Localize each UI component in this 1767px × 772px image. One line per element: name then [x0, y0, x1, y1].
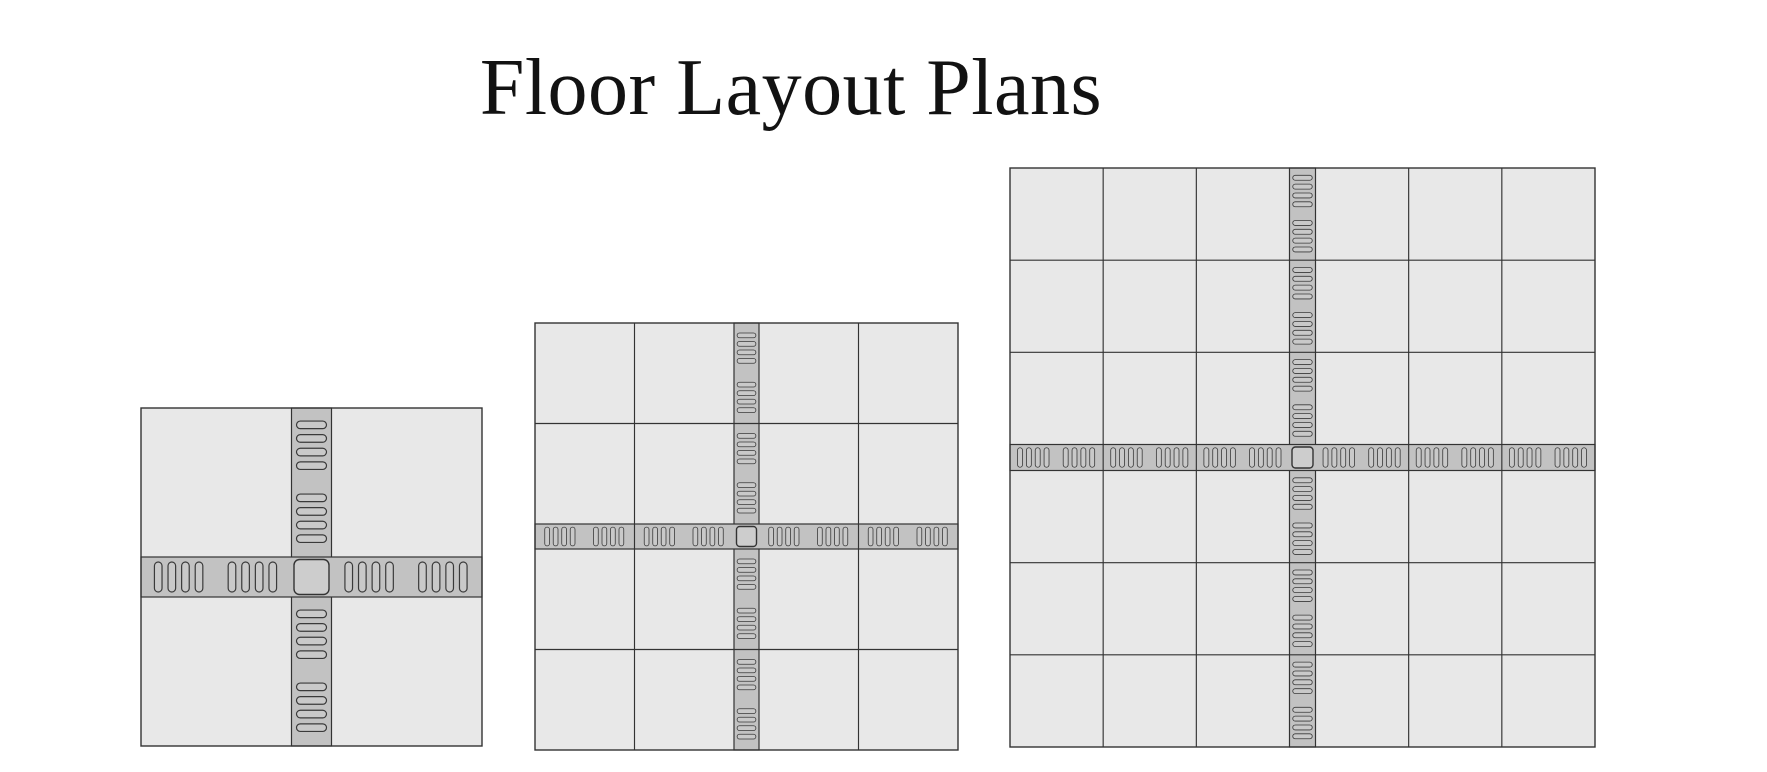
hatch-pill: [297, 697, 327, 705]
hatch-pill: [1471, 448, 1476, 468]
hatch-pill: [737, 382, 756, 387]
hatch-pill: [1434, 448, 1439, 468]
hatch-pill: [1293, 671, 1313, 676]
hatch-pill: [934, 527, 939, 546]
hatch-pill: [1293, 495, 1313, 500]
hatch-pill: [1293, 570, 1313, 575]
hatch-pill: [885, 527, 890, 546]
hatch-pill: [269, 562, 277, 592]
hatch-pill: [737, 500, 756, 505]
hatch-pill: [1293, 615, 1313, 620]
hatch-pill: [769, 527, 774, 546]
hatch-pill: [1258, 448, 1263, 468]
hatch-pill: [737, 491, 756, 496]
hatch-pill: [297, 535, 327, 543]
hatch-pill: [359, 562, 367, 592]
hatch-pill: [661, 527, 666, 546]
hatch-pill: [1527, 448, 1532, 468]
hatch-pill: [386, 562, 394, 592]
hatch-pill: [345, 562, 353, 592]
hatch-pill: [1293, 504, 1313, 509]
hatch-pill: [1293, 184, 1313, 189]
hatch-pill: [826, 527, 831, 546]
hatch-pill: [737, 677, 756, 682]
hatch-pill: [1443, 448, 1448, 468]
hatch-pill: [1293, 588, 1313, 593]
hatch-pill: [894, 527, 899, 546]
hatch-pill: [297, 651, 327, 659]
hatch-pill: [1293, 386, 1313, 391]
hatch-pill: [297, 435, 327, 443]
hatch-pill: [1293, 330, 1313, 335]
hatch-pill: [1293, 523, 1313, 528]
hatch-pill: [943, 527, 948, 546]
hatch-pill: [1276, 448, 1281, 468]
hatch-pill: [182, 562, 190, 592]
hatch-pill: [1293, 339, 1313, 344]
hatch-pill: [297, 683, 327, 691]
hatch-pill: [1293, 321, 1313, 326]
hatch-pill: [737, 350, 756, 355]
hatch-pill: [1555, 448, 1560, 468]
hatch-pill: [737, 451, 756, 456]
hatch-pill: [818, 527, 823, 546]
hatch-pill: [1323, 448, 1328, 468]
hatch-pill: [737, 608, 756, 613]
hatch-pill: [1018, 448, 1023, 468]
hatch-pill: [242, 562, 250, 592]
hatch-pill: [1293, 633, 1313, 638]
hatch-pill: [570, 527, 575, 546]
hatch-pill: [1293, 229, 1313, 234]
hatch-pill: [1156, 448, 1161, 468]
hatch-pill: [297, 448, 327, 456]
floor-plan-4x4: [535, 323, 958, 750]
hatch-pill: [1293, 247, 1313, 252]
hatch-pill: [1293, 734, 1313, 739]
hatch-pill: [1293, 487, 1313, 492]
hatch-pill: [1213, 448, 1218, 468]
hatch-pill: [1063, 448, 1068, 468]
hatch-pill: [835, 527, 840, 546]
hatch-pill: [553, 527, 558, 546]
hatch-pill: [1509, 448, 1514, 468]
hatch-pill: [1293, 220, 1313, 225]
hatch-pill: [1293, 431, 1313, 436]
hatch-pill: [737, 408, 756, 413]
hatch-pill: [1293, 313, 1313, 318]
hatch-pill: [1480, 448, 1485, 468]
hatch-pill: [1293, 422, 1313, 427]
hatch-pill: [1174, 448, 1179, 468]
center-intersection: [294, 560, 329, 595]
hatch-pill: [1293, 689, 1313, 694]
hatch-pill: [737, 576, 756, 581]
hatch-pill: [737, 585, 756, 590]
hatch-pill: [1293, 175, 1313, 180]
hatch-pill: [1293, 478, 1313, 483]
hatch-pill: [195, 562, 203, 592]
hatch-pill: [1044, 448, 1049, 468]
hatch-pill: [1536, 448, 1541, 468]
hatch-pill: [594, 527, 599, 546]
hatch-pill: [297, 521, 327, 529]
hatch-pill: [670, 527, 675, 546]
hatch-pill: [737, 559, 756, 564]
hatch-pill: [1111, 448, 1116, 468]
hatch-pill: [737, 625, 756, 630]
hatch-pill: [228, 562, 236, 592]
hatch-pill: [644, 527, 649, 546]
hatch-pill: [1204, 448, 1209, 468]
hatch-pill: [1090, 448, 1095, 468]
hatch-pill: [1564, 448, 1569, 468]
hatch-pill: [777, 527, 782, 546]
hatch-pill: [619, 527, 624, 546]
hatch-pill: [1293, 276, 1313, 281]
hatch-pill: [297, 637, 327, 645]
hatch-pill: [737, 668, 756, 673]
hatch-pill: [432, 562, 440, 592]
center-intersection: [737, 527, 757, 547]
hatch-pill: [737, 434, 756, 439]
hatch-pill: [255, 562, 263, 592]
hatch-pill: [1293, 680, 1313, 685]
hatch-pill: [1293, 532, 1313, 537]
hatch-pill: [1128, 448, 1133, 468]
hatch-pill: [1137, 448, 1142, 468]
hatch-pill: [611, 527, 616, 546]
hatch-pill: [1293, 377, 1313, 382]
hatch-pill: [1293, 707, 1313, 712]
hatch-pill: [737, 342, 756, 347]
hatch-pill: [459, 562, 467, 592]
hatch-pill: [737, 442, 756, 447]
hatch-pill: [419, 562, 427, 592]
hatch-pill: [446, 562, 454, 592]
hatch-pill: [1072, 448, 1077, 468]
hatch-pill: [1293, 596, 1313, 601]
hatch-pill: [1081, 448, 1086, 468]
hatch-pill: [1293, 285, 1313, 290]
hatch-pill: [737, 726, 756, 731]
hatch-pill: [737, 660, 756, 665]
hatch-pill: [1165, 448, 1170, 468]
hatch-pill: [297, 724, 327, 732]
hatch-pill: [1250, 448, 1255, 468]
hatch-pill: [1293, 549, 1313, 554]
hatch-pill: [1378, 448, 1383, 468]
hatch-pill: [297, 462, 327, 470]
hatch-pill: [1183, 448, 1188, 468]
hatch-pill: [297, 624, 327, 632]
hatch-pill: [1293, 360, 1313, 365]
hatch-pill: [843, 527, 848, 546]
hatch-pill: [710, 527, 715, 546]
hatch-pill: [1293, 193, 1313, 198]
hatch-pill: [737, 333, 756, 338]
hatch-pill: [1395, 448, 1400, 468]
hatch-pill: [1293, 725, 1313, 730]
hatch-pill: [1416, 448, 1421, 468]
hatch-pill: [1293, 294, 1313, 299]
hatch-pill: [1332, 448, 1337, 468]
hatch-pill: [702, 527, 707, 546]
hatch-pill: [868, 527, 873, 546]
canvas: Floor Layout Plans: [0, 0, 1767, 772]
hatch-pill: [1293, 368, 1313, 373]
hatch-pill: [1582, 448, 1587, 468]
hatch-pill: [168, 562, 176, 592]
hatch-pill: [737, 685, 756, 690]
hatch-pill: [372, 562, 380, 592]
hatch-pill: [297, 494, 327, 502]
hatch-pill: [786, 527, 791, 546]
hatch-pill: [1120, 448, 1125, 468]
hatch-pill: [1293, 414, 1313, 419]
hatch-pill: [693, 527, 698, 546]
hatch-pill: [1026, 448, 1031, 468]
hatch-pill: [602, 527, 607, 546]
floor-plan-2x2: [141, 408, 482, 746]
hatch-pill: [917, 527, 922, 546]
hatch-pill: [154, 562, 162, 592]
hatch-pill: [1293, 716, 1313, 721]
hatch-pill: [1341, 448, 1346, 468]
hatch-pill: [1293, 642, 1313, 647]
center-intersection: [1292, 447, 1313, 468]
hatch-pill: [297, 421, 327, 429]
hatch-pill: [737, 734, 756, 739]
hatch-pill: [297, 610, 327, 618]
hatch-pill: [737, 508, 756, 513]
hatch-pill: [562, 527, 567, 546]
hatch-pill: [737, 617, 756, 622]
hatch-pill: [1293, 579, 1313, 584]
floor-plans: [0, 0, 1767, 772]
hatch-pill: [737, 483, 756, 488]
hatch-pill: [1293, 202, 1313, 207]
hatch-pill: [1293, 238, 1313, 243]
floor-plan-6x6: [1010, 168, 1595, 747]
hatch-pill: [737, 459, 756, 464]
hatch-pill: [297, 710, 327, 718]
hatch-pill: [877, 527, 882, 546]
hatch-pill: [1425, 448, 1430, 468]
hatch-pill: [737, 359, 756, 364]
hatch-pill: [1518, 448, 1523, 468]
hatch-pill: [1488, 448, 1493, 468]
hatch-pill: [1293, 405, 1313, 410]
hatch-pill: [1035, 448, 1040, 468]
hatch-pill: [1386, 448, 1391, 468]
hatch-pill: [1267, 448, 1272, 468]
hatch-pill: [737, 391, 756, 396]
hatch-pill: [1369, 448, 1374, 468]
hatch-pill: [794, 527, 799, 546]
hatch-pill: [545, 527, 550, 546]
hatch-pill: [926, 527, 931, 546]
hatch-pill: [737, 634, 756, 639]
hatch-pill: [719, 527, 724, 546]
hatch-pill: [1293, 624, 1313, 629]
hatch-pill: [1573, 448, 1578, 468]
hatch-pill: [1230, 448, 1235, 468]
hatch-pill: [737, 717, 756, 722]
hatch-pill: [737, 709, 756, 714]
hatch-pill: [1293, 267, 1313, 272]
hatch-pill: [653, 527, 658, 546]
hatch-pill: [737, 568, 756, 573]
hatch-pill: [297, 508, 327, 516]
hatch-pill: [1462, 448, 1467, 468]
hatch-pill: [1222, 448, 1227, 468]
hatch-pill: [1293, 662, 1313, 667]
hatch-pill: [1293, 541, 1313, 546]
hatch-pill: [737, 399, 756, 404]
hatch-pill: [1350, 448, 1355, 468]
